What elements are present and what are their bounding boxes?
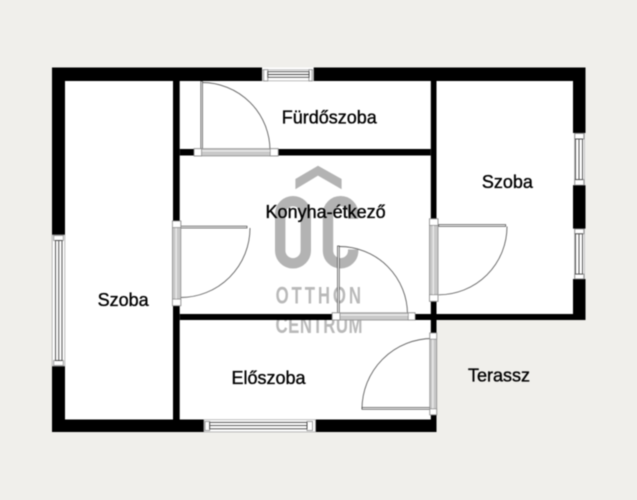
svg-text:Fürdőszoba: Fürdőszoba (282, 107, 378, 127)
svg-text:OTTHON: OTTHON (276, 283, 361, 310)
svg-text:Előszoba: Előszoba (231, 368, 306, 388)
svg-text:Szoba: Szoba (98, 290, 150, 310)
svg-text:Konyha-étkező: Konyha-étkező (266, 202, 386, 222)
svg-text:Szoba: Szoba (482, 172, 534, 192)
svg-text:Terassz: Terassz (468, 365, 530, 385)
